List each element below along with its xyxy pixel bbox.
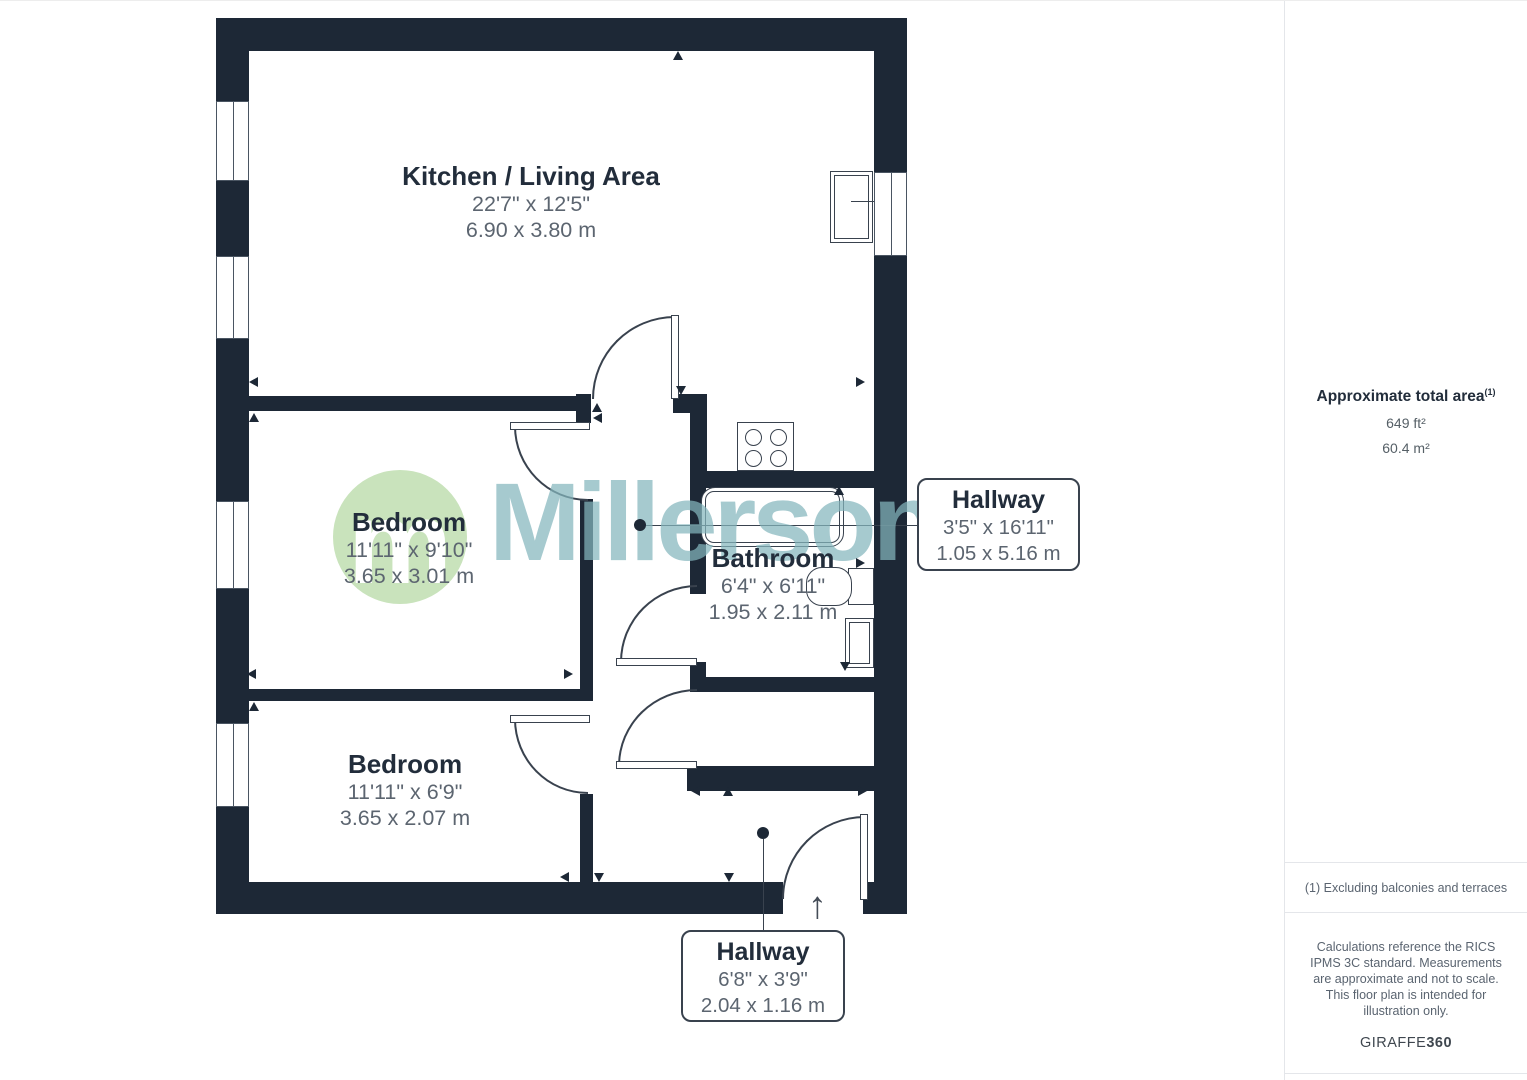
room-name: Bedroom <box>255 749 555 779</box>
measure-arrow-icon <box>840 662 850 671</box>
room-dim-imperial: 6'8" x 3'9" <box>683 967 843 993</box>
wall <box>874 18 907 172</box>
footnote-section: (1) Excluding balconies and terraces <box>1285 862 1527 913</box>
measure-arrow-icon <box>858 786 867 796</box>
leader-dot <box>757 827 769 839</box>
measure-arrow-icon <box>592 403 602 412</box>
wall <box>216 181 249 256</box>
measure-arrow-icon <box>249 377 258 387</box>
room-label-bedroom-2: Bedroom 11'11" x 6'9" 3.65 x 2.07 m <box>255 749 555 831</box>
room-name: Hallway <box>919 485 1078 515</box>
measure-arrow-icon <box>247 669 256 679</box>
window <box>216 101 249 181</box>
wall <box>216 589 249 723</box>
window <box>216 256 249 339</box>
wall <box>249 689 593 701</box>
measure-arrow-icon <box>593 413 602 423</box>
wall <box>690 677 874 692</box>
wall <box>687 766 874 791</box>
wall <box>580 794 593 882</box>
room-dim-metric: 2.04 x 1.16 m <box>683 993 843 1019</box>
giraffe360-logo-suffix: 360 <box>1426 1035 1452 1051</box>
disclaimer-section: Calculations reference the RICS IPMS 3C … <box>1285 913 1527 1074</box>
measure-arrow-icon <box>560 872 569 882</box>
door-leaf <box>510 715 590 723</box>
room-name: Hallway <box>683 937 843 967</box>
room-dim-metric: 1.95 x 2.11 m <box>663 599 883 625</box>
room-dim-imperial: 22'7" x 12'5" <box>331 191 731 217</box>
window <box>874 172 907 256</box>
room-dim-metric: 1.05 x 5.16 m <box>919 541 1078 567</box>
floorplan-canvas: ↑ <box>0 1 1284 1080</box>
total-area-m: 60.4 m² <box>1285 440 1527 456</box>
room-dim-metric: 6.90 x 3.80 m <box>331 217 731 243</box>
callout-hallway-main: Hallway 3'5" x 16'11" 1.05 x 5.16 m <box>917 478 1080 571</box>
leader-dot <box>634 519 646 531</box>
door-leaf <box>616 658 697 666</box>
callout-hallway-entry: Hallway 6'8" x 3'9" 2.04 x 1.16 m <box>681 930 845 1022</box>
room-name: Bedroom <box>259 507 559 537</box>
room-dim-imperial: 3'5" x 16'11" <box>919 515 1078 541</box>
door-arc <box>592 316 675 399</box>
measure-arrow-icon <box>249 702 259 711</box>
room-name: Kitchen / Living Area <box>331 161 731 191</box>
wall <box>216 18 249 101</box>
entry-door-leaf <box>860 814 868 900</box>
room-label-bathroom: Bathroom 6'4" x 6'11" 1.95 x 2.11 m <box>663 543 883 625</box>
sink-icon <box>845 618 874 668</box>
room-name: Bathroom <box>663 543 883 573</box>
measure-arrow-icon <box>724 873 734 882</box>
room-label-bedroom-1: Bedroom 11'11" x 9'10" 3.65 x 3.01 m <box>259 507 559 589</box>
info-sidebar: Approximate total area(1) 649 ft² 60.4 m… <box>1284 1 1527 1080</box>
wall <box>216 882 783 914</box>
window <box>216 723 249 807</box>
total-area-heading: Approximate total area(1) <box>1285 387 1527 406</box>
measure-arrow-icon <box>834 486 844 495</box>
wall <box>216 18 907 51</box>
kitchen-unit-icon <box>830 171 873 243</box>
total-area-label: Approximate total area <box>1317 388 1485 405</box>
measure-arrow-icon <box>249 413 259 422</box>
leader-line <box>763 839 764 931</box>
entrance-arrow-icon: ↑ <box>808 887 827 925</box>
wall <box>576 394 591 423</box>
window <box>216 501 249 589</box>
footnote-text: (1) Excluding balconies and terraces <box>1305 881 1507 895</box>
wall <box>863 882 907 914</box>
total-area-ft: 649 ft² <box>1285 415 1527 431</box>
measure-arrow-icon <box>594 873 604 882</box>
floorplan-page: ↑ <box>0 0 1527 1080</box>
total-area-block: Approximate total area(1) 649 ft² 60.4 m… <box>1285 387 1527 456</box>
room-dim-metric: 3.65 x 2.07 m <box>255 805 555 831</box>
room-label-kitchen-living: Kitchen / Living Area 22'7" x 12'5" 6.90… <box>331 161 731 243</box>
door-arc <box>618 689 697 766</box>
disclaimer-text: Calculations reference the RICS IPMS 3C … <box>1304 939 1508 1019</box>
room-dim-imperial: 6'4" x 6'11" <box>663 573 883 599</box>
room-dim-metric: 3.65 x 3.01 m <box>259 563 559 589</box>
measure-arrow-icon <box>723 787 733 796</box>
room-dim-imperial: 11'11" x 6'9" <box>255 779 555 805</box>
total-area-footnote-ref: (1) <box>1484 387 1495 397</box>
measure-arrow-icon <box>676 386 686 395</box>
measure-arrow-icon <box>564 669 573 679</box>
measure-arrow-icon <box>673 51 683 60</box>
measure-arrow-icon <box>856 377 865 387</box>
door-leaf <box>616 761 697 769</box>
room-dim-imperial: 11'11" x 9'10" <box>259 537 559 563</box>
giraffe360-logo-prefix: GIRAFFE <box>1360 1035 1426 1051</box>
wall <box>216 339 249 501</box>
kitchen-unit-handle <box>851 201 874 202</box>
giraffe360-logo: GIRAFFE360 <box>1285 1035 1527 1051</box>
wall <box>249 396 583 411</box>
measure-arrow-icon <box>691 786 700 796</box>
door-leaf <box>510 422 590 430</box>
